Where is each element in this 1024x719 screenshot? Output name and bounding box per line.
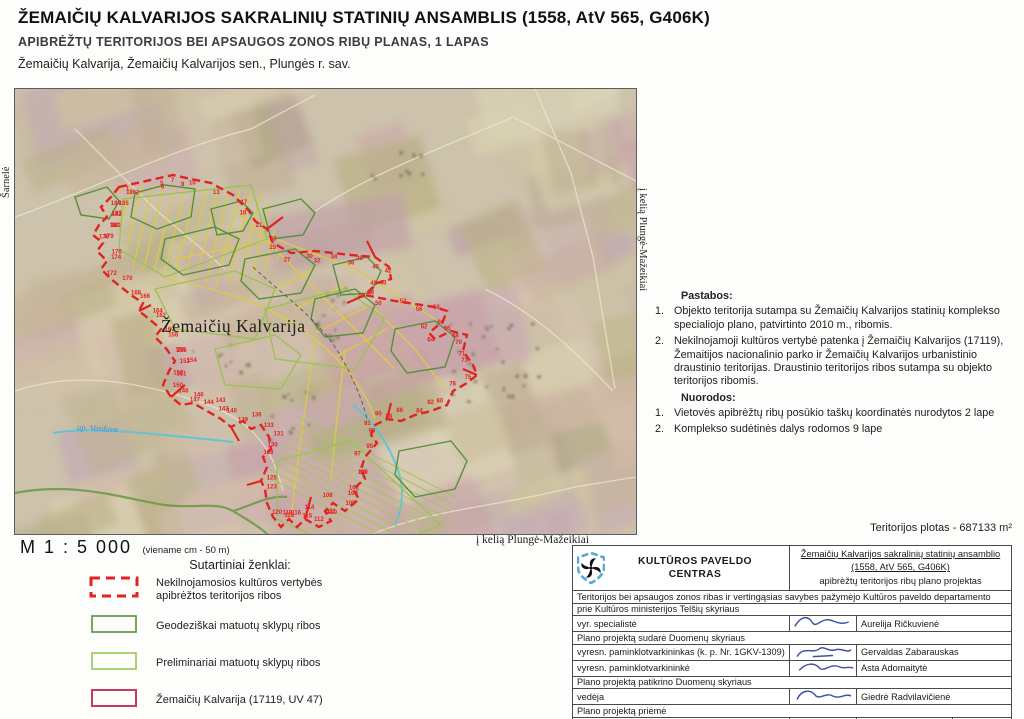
scale-value: M 1 : 5 000 — [20, 537, 132, 557]
vertex-number: 13 — [213, 190, 220, 196]
legend-item: Geodeziškai matuotų sklypų ribos — [88, 612, 323, 641]
vertex-number: 139 — [238, 418, 249, 424]
vertex-number: 38 — [356, 256, 363, 262]
project-title-cell: Žemaičių Kalvarijos sakralinių statinių … — [790, 546, 1011, 590]
river-name-label: up. Varduva — [77, 422, 118, 434]
vertex-number: 144 — [204, 400, 215, 406]
vertex-number: 111 — [326, 509, 336, 515]
vertex-number: 112 — [314, 517, 324, 523]
plan-map-svg: 1256781013171821232527303234363840424345… — [15, 89, 636, 534]
signature-scribble — [790, 613, 858, 631]
vertex-number: 179 — [104, 234, 115, 240]
vertex-number: 80 — [437, 399, 444, 405]
table-header: KULTŪROS PAVELDO CENTRAS Žemaičių Kalvar… — [573, 546, 1011, 590]
town-name-label: Žemaičių Kalvarija — [161, 316, 306, 336]
vertex-number: 154 — [187, 358, 198, 364]
vertex-number: 46 — [368, 291, 375, 297]
aerial-plan-map: 1256781013171821232527303234363840424345… — [14, 88, 637, 535]
vertex-number: 143 — [216, 398, 227, 404]
vertex-number: 34 — [331, 255, 338, 261]
vertex-number: 115 — [302, 513, 312, 519]
signature-scribble — [790, 658, 858, 676]
vertex-number: 131 — [274, 432, 285, 438]
vertex-number: 186 — [126, 190, 137, 196]
legend-item-label: Nekilnojamosios kultūros vertybėsapibrėž… — [156, 577, 322, 602]
vertex-number: 120 — [272, 510, 283, 516]
territory-area: Teritorijos plotas - 687133 m² — [818, 522, 1012, 534]
vertex-number: 25 — [269, 245, 276, 251]
road-label-right: į kelią Plungė-Mažeikiai — [637, 188, 648, 338]
road-label-left: Šarnelė — [1, 142, 12, 222]
legend-title: Sutartiniai ženklai: — [130, 558, 350, 572]
vertex-number: 27 — [284, 258, 291, 264]
vertex-number: 23 — [270, 237, 277, 243]
vertex-number: 90 — [375, 412, 382, 418]
vertex-number: 97 — [354, 452, 361, 458]
org-name: KULTŪROS PAVELDO CENTRAS — [609, 555, 789, 582]
legend-item: Preliminariai matuotų sklypų ribos — [88, 649, 323, 678]
signature-scribble — [790, 686, 858, 704]
note-item: 1.Objekto teritorija sutampa su Žemaičių… — [655, 305, 1019, 332]
vertex-number: 176 — [112, 249, 123, 255]
vertex-number: 42 — [385, 269, 392, 275]
note-item: 2.Nekilnojamoji kultūros vertybė patenka… — [655, 335, 1019, 389]
vertex-number: 73 — [461, 358, 468, 364]
vertex-number: 148 — [178, 389, 189, 395]
vertex-number: 68 — [452, 334, 459, 340]
vertex-number: 136 — [252, 413, 263, 419]
legend-item-label: Žemaičių Kalvarija (17119, UV 47) — [156, 694, 323, 707]
vertex-number: 48 — [358, 294, 365, 300]
vertex-number: 183 — [112, 211, 123, 217]
vertex-number: 119 — [283, 511, 293, 517]
vertex-number: 166 — [140, 294, 151, 300]
role-label: vyresn. paminklotvarkininkė — [573, 663, 789, 673]
red-dashed-swatch-icon — [88, 575, 144, 599]
notes-heading: Nuorodos: — [681, 392, 1019, 405]
signatory-name: Gervaldas Zabarauskas — [856, 645, 1011, 660]
scale-note: (viename cm - 50 m) — [143, 545, 230, 556]
vertex-number: 185 — [119, 201, 130, 207]
vertex-number: 170 — [122, 276, 133, 282]
vertex-number: 30 — [306, 254, 313, 260]
note-item: 2.Komplekso sudėtinės dalys rodomos 9 la… — [655, 423, 1019, 436]
vertex-number: 88 — [386, 414, 393, 420]
crimson-swatch-icon — [88, 686, 144, 710]
vertex-number: 75 — [465, 375, 472, 381]
vertex-number: 86 — [396, 408, 403, 414]
vertex-number: 114 — [305, 505, 315, 511]
vertex-number: 95 — [366, 444, 373, 450]
vertex-number: 130 — [268, 443, 279, 449]
vertex-number: 70 — [455, 340, 462, 346]
note-item: 1.Vietovės apibrėžtų ribų posūkio taškų … — [655, 407, 1019, 420]
vertex-number: 45 — [370, 281, 377, 287]
vertex-number: 147 — [190, 398, 201, 404]
role-label: vyresn. paminklotvarkininkas (k. p. Nr. … — [573, 647, 789, 657]
legend-item-label: Geodeziškai matuotų sklypų ribos — [156, 620, 320, 633]
vertex-number: 43 — [380, 281, 387, 287]
vertex-number: 36 — [348, 261, 355, 267]
legend-item: Žemaičių Kalvarija (17119, UV 47) — [88, 686, 323, 715]
vertex-number: 18 — [240, 211, 247, 217]
vertex-number: 172 — [107, 271, 118, 277]
green-light-swatch-icon — [88, 649, 144, 673]
vertex-number: 62 — [421, 324, 428, 330]
vertex-number: 32 — [314, 259, 321, 265]
vertex-number: 150 — [173, 383, 184, 389]
org-cell: KULTŪROS PAVELDO CENTRAS — [573, 546, 790, 590]
vertex-number: 91 — [364, 421, 371, 427]
vertex-number: 93 — [369, 428, 376, 434]
vertex-number: 105 — [346, 501, 357, 507]
vertex-number: 142 — [219, 406, 230, 412]
vertex-number: 100 — [358, 470, 369, 476]
vertex-number: 78 — [449, 382, 456, 388]
legend-item: Nekilnojamosios kultūros vertybėsapibrėž… — [88, 575, 323, 604]
vertex-number: 125 — [267, 475, 278, 481]
vertex-number: 82 — [427, 400, 434, 406]
approval-table: KULTŪROS PAVELDO CENTRAS Žemaičių Kalvar… — [572, 545, 1012, 719]
vertex-number: 133 — [264, 423, 275, 429]
vertex-number: 174 — [111, 255, 122, 261]
table-row: vyresn. paminklotvarkininkėAsta Adomaity… — [573, 660, 1011, 676]
vertex-number: 181 — [110, 223, 121, 229]
vertex-number: 152 — [173, 370, 184, 376]
green-dark-swatch-icon — [88, 612, 144, 636]
vertex-number: 58 — [433, 305, 440, 311]
vertex-number: 108 — [323, 493, 334, 499]
page-subtitle: APIBRĖŽTŲ TERITORIJOS BEI APSAUGOS ZONOS… — [18, 35, 489, 49]
vertex-number: 64 — [427, 338, 434, 344]
vertex-number: 53 — [400, 299, 407, 305]
table-row: Teritorijos bei apsaugos zonos ribas ir … — [573, 590, 1011, 603]
vertex-number: 56 — [416, 307, 423, 313]
vertex-number: 128 — [264, 450, 275, 456]
map-scale: M 1 : 5 000 (viename cm - 50 m) — [20, 537, 230, 558]
vertex-number: 84 — [416, 409, 423, 415]
vertex-number: 123 — [267, 485, 278, 491]
vertex-number: 156 — [175, 347, 186, 353]
vertex-number: 168 — [131, 290, 142, 296]
heritage-centre-logo-icon — [577, 552, 605, 584]
vertex-number: 164 — [153, 308, 164, 314]
signature-scribble — [790, 715, 858, 719]
vertex-number: 71 — [459, 352, 466, 358]
vertex-number: 60 — [438, 320, 445, 326]
vertex-number: 40 — [372, 265, 379, 271]
notes-block: Pastabos:1.Objekto teritorija sutampa su… — [655, 288, 1019, 440]
page-title: ŽEMAIČIŲ KALVARIJOS SAKRALINIŲ STATINIŲ … — [18, 8, 710, 28]
signatory-name: Giedrė Radvilavičienė — [856, 689, 1011, 704]
table-row: vedėjaGiedrė Radvilavičienė — [573, 688, 1011, 704]
role-label: vyr. specialistė — [573, 619, 789, 629]
vertex-number: 66 — [444, 326, 451, 332]
signatory-name: Asta Adomaitytė — [856, 661, 1011, 676]
vertex-number: 50 — [375, 301, 382, 307]
legend: Nekilnojamosios kultūros vertybėsapibrėž… — [88, 575, 323, 719]
role-label: vedėja — [573, 692, 789, 702]
plan-sheet: ŽEMAIČIŲ KALVARIJOS SAKRALINIŲ STATINIŲ … — [0, 0, 1024, 719]
vertex-number: 104 — [348, 491, 359, 497]
legend-item-label: Preliminariai matuotų sklypų ribos — [156, 657, 320, 670]
notes-heading: Pastabos: — [681, 290, 1019, 303]
vertex-number: 21 — [256, 223, 263, 229]
table-row: vyr. specialistėAurelija Ričkuvienė — [573, 615, 1011, 631]
page-location: Žemaičių Kalvarija, Žemaičių Kalvarijos … — [18, 57, 351, 71]
vertex-number: 17 — [241, 200, 248, 206]
signatory-name: Aurelija Ričkuvienė — [856, 616, 1011, 631]
vertex-number: 10 — [189, 180, 196, 186]
